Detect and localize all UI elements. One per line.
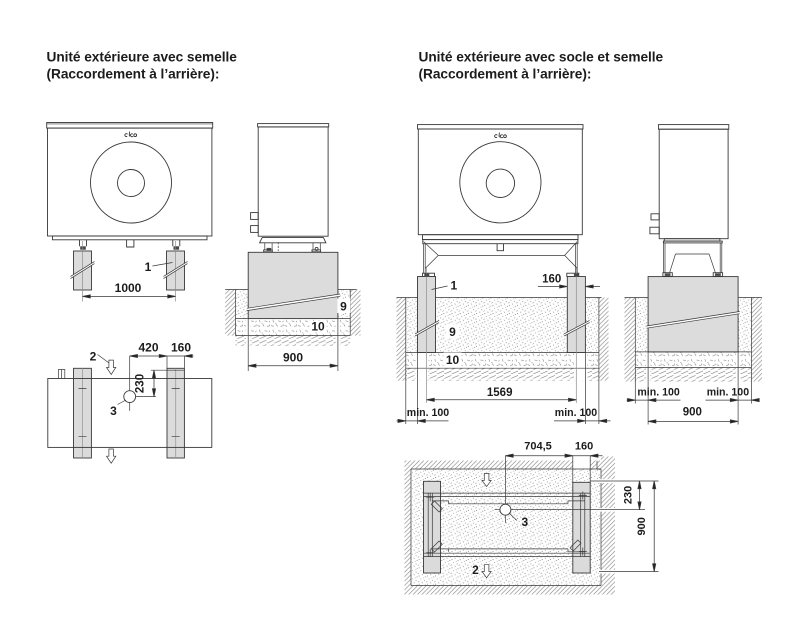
svg-text:min. 100: min. 100	[637, 386, 680, 398]
svg-text:9: 9	[340, 300, 347, 314]
svg-text:3: 3	[522, 515, 529, 529]
svg-text:Unité extérieure avec socle et: Unité extérieure avec socle et semelle	[419, 50, 664, 65]
svg-text:900: 900	[283, 351, 303, 365]
svg-text:min. 100: min. 100	[707, 386, 750, 398]
svg-text:2: 2	[472, 563, 479, 577]
svg-text:900: 900	[683, 406, 702, 418]
svg-text:Unité extérieure avec semelle: Unité extérieure avec semelle	[47, 50, 238, 65]
svg-text:1000: 1000	[115, 281, 142, 295]
svg-text:230: 230	[135, 374, 147, 393]
svg-text:160: 160	[171, 341, 191, 355]
svg-text:3: 3	[110, 404, 117, 418]
svg-text:2: 2	[90, 350, 97, 364]
svg-text:1569: 1569	[487, 387, 513, 399]
svg-text:704,5: 704,5	[524, 441, 552, 453]
svg-text:10: 10	[311, 320, 325, 334]
svg-text:230: 230	[622, 486, 634, 504]
svg-text:1: 1	[451, 279, 458, 293]
svg-text:min. 100: min. 100	[407, 407, 450, 419]
svg-text:1: 1	[145, 260, 152, 274]
svg-text:10: 10	[446, 353, 460, 367]
svg-text:900: 900	[636, 517, 648, 535]
svg-text:(Raccordement à l’arrière):: (Raccordement à l’arrière):	[419, 67, 592, 82]
svg-text:9: 9	[449, 325, 456, 339]
svg-text:(Raccordement à l’arrière):: (Raccordement à l’arrière):	[47, 67, 220, 82]
svg-text:160: 160	[542, 273, 561, 285]
svg-text:160: 160	[575, 441, 593, 453]
svg-text:min. 100: min. 100	[555, 407, 598, 419]
svg-text:420: 420	[138, 341, 158, 355]
